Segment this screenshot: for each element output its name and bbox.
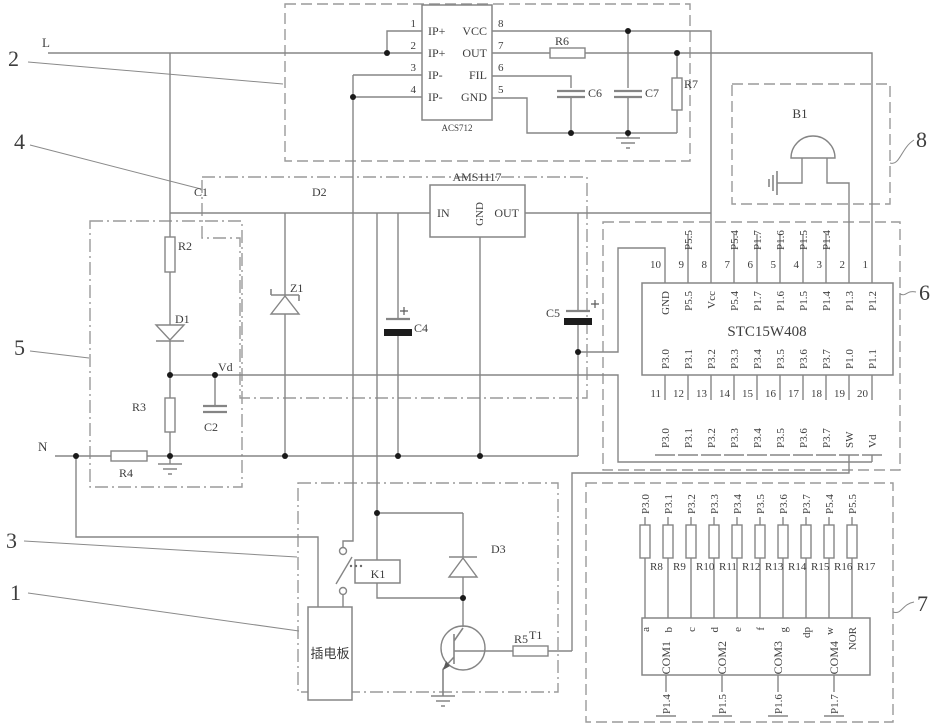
- mcu-bottom-pin-name: P3.2: [706, 349, 718, 369]
- display-segment-pin: g: [778, 627, 790, 633]
- mcu-bottom-pin-name: P3.1: [683, 349, 695, 369]
- display-segment-pin: dp: [801, 627, 813, 639]
- label-c4: C4: [414, 321, 428, 335]
- label-d1: D1: [175, 312, 190, 326]
- ams1117-pin-in: IN: [437, 206, 450, 220]
- display-segment-pin: a: [640, 627, 652, 632]
- mcu-top-net-label: P1.5: [798, 230, 810, 250]
- ref-4: 4: [14, 129, 25, 154]
- mcu-bottom-net-label: P3.0: [660, 428, 672, 448]
- mcu-top-pin-number: 7: [725, 259, 731, 271]
- mcu-top-pin-name: P1.4: [821, 291, 833, 311]
- acs712-left-pin-number: 2: [411, 40, 417, 52]
- mcu-bottom-net-label: P3.5: [775, 428, 787, 448]
- display-resistor-label: R9: [673, 561, 686, 573]
- mcu-bottom-net-label: P3.4: [752, 428, 764, 448]
- mcu-bottom-net-label: P3.1: [683, 428, 695, 448]
- display-input-net-label: P3.2: [686, 494, 698, 514]
- label-r2: R2: [178, 239, 192, 253]
- display-resistor-label: R14: [788, 561, 807, 573]
- display-segment-pin: d: [709, 627, 721, 633]
- display-input-net-label: P3.6: [778, 494, 790, 514]
- net-label-live: L: [42, 35, 50, 50]
- acs712-left-pin-number: 3: [411, 62, 417, 74]
- net-label-neutral: N: [38, 439, 48, 454]
- ams1117-pin-out: OUT: [494, 206, 519, 220]
- display-com-net-label: P1.6: [773, 694, 785, 714]
- display-com-pin: COM3: [771, 641, 785, 674]
- acs712-left-pin-number: 4: [411, 84, 417, 96]
- mcu-top-pin-name: GND: [660, 291, 672, 315]
- resistor-r8: [640, 525, 650, 558]
- net-label-vd: Vd: [218, 360, 233, 374]
- diode-d3: [449, 558, 477, 577]
- mcu-bottom-pin-name: P3.4: [752, 349, 764, 369]
- display-resistor-label: R17: [857, 561, 876, 573]
- mcu-top-pin-name: P5.5: [683, 291, 695, 311]
- mcu-bottom-pin-number: 13: [696, 388, 708, 400]
- label-c1: C1: [194, 185, 208, 199]
- display-segment-pin: c: [686, 627, 698, 632]
- display-segment-pin: NOR: [847, 626, 859, 650]
- display-resistor-label: R16: [834, 561, 853, 573]
- mcu-top-pin-number: 10: [650, 259, 662, 271]
- plug-board-label: 插电板: [310, 646, 349, 661]
- label-c2: C2: [204, 420, 218, 434]
- ref-1: 1: [10, 580, 21, 605]
- ams1117-name: AMS1117: [452, 170, 501, 184]
- acs712-left-pin: IP-: [428, 68, 443, 82]
- resistor-r6: [550, 48, 585, 58]
- display-segment-pin: e: [732, 627, 744, 632]
- acs712-name: ACS712: [441, 123, 472, 133]
- mcu-top-net-label: P1.7: [752, 230, 764, 250]
- resistor-r15: [801, 525, 811, 558]
- label-r7: R7: [684, 77, 698, 91]
- mcu-top-pin-number: 2: [840, 259, 846, 271]
- mcu-bottom-net-label: P3.2: [706, 428, 718, 448]
- mcu-bottom-net-label: P3.6: [798, 428, 810, 448]
- ref-5: 5: [14, 335, 25, 360]
- label-b1: B1: [792, 106, 807, 121]
- display-resistor-label: R8: [650, 561, 663, 573]
- mcu-bottom-pin-number: 17: [788, 388, 800, 400]
- resistor-r7: [672, 78, 682, 110]
- polarity-plus-marks: [400, 300, 599, 315]
- display-com-net-label: P1.4: [661, 694, 673, 714]
- mcu-bottom-pin-name: P3.7: [821, 349, 833, 369]
- ref-6: 6: [919, 280, 930, 305]
- resistor-r17: [847, 525, 857, 558]
- ref-8: 8: [916, 127, 927, 152]
- ref-3: 3: [6, 528, 17, 553]
- mcu-bottom-pin-number: 11: [650, 388, 661, 400]
- mcu-top-pin-number: 9: [679, 259, 685, 271]
- capacitor-c6: [557, 91, 585, 97]
- region-4-power-boundary: [202, 177, 587, 398]
- mcu-bottom-pin-name: P1.1: [867, 349, 879, 369]
- display-input-net-label: P3.0: [640, 494, 652, 514]
- mcu-bottom-pin-number: 18: [811, 388, 823, 400]
- resistor-r11: [709, 525, 719, 558]
- mcu-top-pin-number: 3: [817, 259, 823, 271]
- mcu-bottom-pin-number: 14: [719, 388, 731, 400]
- resistor-r9: [663, 525, 673, 558]
- stc15w408-name: STC15W408: [727, 324, 806, 340]
- mcu-bottom-pin-number: 15: [742, 388, 754, 400]
- patent-figure: LNVd24531867ACS712IP+VCC18IP+OUT27IP-FIL…: [0, 0, 944, 727]
- acs712-right-pin: GND: [461, 90, 487, 104]
- display-input-net-label: P5.5: [847, 494, 859, 514]
- acs712-left-pin: IP+: [428, 24, 446, 38]
- diode-d1: [156, 325, 184, 340]
- mcu-top-pin-name: P1.6: [775, 291, 787, 311]
- mcu-top-pin-name: P1.7: [752, 291, 764, 311]
- mcu-top-pin-number: 8: [702, 259, 708, 271]
- resistor-r4: [111, 451, 147, 461]
- acs712-left-pin-number: 1: [411, 18, 417, 30]
- acs712-right-pin-number: 7: [498, 40, 504, 52]
- acs712-right-pin: OUT: [462, 46, 487, 60]
- display-resistor-label: R10: [696, 561, 715, 573]
- switch-actuation-dots: [350, 565, 362, 567]
- label-r4: R4: [119, 466, 133, 480]
- mcu-bottom-pin-name: P3.5: [775, 349, 787, 369]
- mcu-bottom-net-label: P3.3: [729, 428, 741, 448]
- acs712-right-pin-number: 8: [498, 18, 504, 30]
- ref-2: 2: [8, 46, 19, 71]
- mcu-bottom-pin-number: 16: [765, 388, 777, 400]
- acs712-right-pin-number: 5: [498, 84, 504, 96]
- mcu-top-net-label: P1.6: [775, 230, 787, 250]
- display-resistors: [640, 525, 857, 558]
- display-input-net-label: P3.3: [709, 494, 721, 514]
- label-z1: Z1: [290, 281, 303, 295]
- mcu-top-pin-name: Vcc: [706, 291, 718, 309]
- capacitor-c2: [203, 406, 227, 412]
- acs712-left-pin: IP-: [428, 90, 443, 104]
- mcu-top-pin-number: 5: [771, 259, 777, 271]
- display-resistor-label: R12: [742, 561, 760, 573]
- acs712-right-pin: FIL: [469, 68, 487, 82]
- label-c7: C7: [645, 86, 659, 100]
- buzzer-b1-symbol: [791, 136, 835, 158]
- display-resistor-label: R13: [765, 561, 784, 573]
- display-segment-pin: f: [755, 627, 767, 631]
- switch-contact-top: [340, 548, 347, 555]
- capacitor-c5-neg-plate: [564, 318, 592, 325]
- label-r5: R5: [514, 632, 528, 646]
- label-c6: C6: [588, 86, 602, 100]
- switch-blade: [336, 557, 352, 584]
- display-com-pin: COM4: [827, 641, 841, 674]
- display-segment-pin: b: [663, 627, 675, 633]
- display-resistor-label: R11: [719, 561, 737, 573]
- mcu-top-pin-number: 1: [863, 259, 869, 271]
- display-input-net-label: P3.7: [801, 494, 813, 514]
- display-com-net-label: P1.5: [717, 694, 729, 714]
- mcu-top-pin-number: 6: [748, 259, 754, 271]
- resistor-r5: [513, 646, 548, 656]
- mcu-bottom-net-label: P3.7: [821, 428, 833, 448]
- region-7-display-boundary: [586, 483, 893, 722]
- mcu-top-pin-name: P1.5: [798, 291, 810, 311]
- mcu-top-pin-name: P5.4: [729, 291, 741, 311]
- mcu-top-net-label: P5.4: [729, 230, 741, 250]
- mcu-bottom-pin-number: 12: [673, 388, 684, 400]
- mcu-top-pin-name: P1.2: [867, 291, 879, 311]
- mcu-bottom-net-label: Vd: [867, 434, 879, 448]
- resistor-r3: [165, 398, 175, 432]
- display-com-pin: COM1: [659, 641, 673, 674]
- mcu-bottom-pin-name: P3.3: [729, 349, 741, 369]
- display-resistor-label: R15: [811, 561, 830, 573]
- relay-contact-switch: [336, 548, 352, 595]
- display-input-net-label: P3.4: [732, 494, 744, 514]
- acs712-right-pin-number: 6: [498, 62, 504, 74]
- ref-7: 7: [917, 591, 928, 616]
- display-input-net-label: P3.1: [663, 494, 675, 514]
- resistor-r13: [755, 525, 765, 558]
- label-r6: R6: [555, 34, 569, 48]
- resistor-r14: [778, 525, 788, 558]
- mcu-bottom-net-label: SW: [844, 431, 856, 448]
- display-input-net-label: P3.5: [755, 494, 767, 514]
- ams1117-pin-gnd: GND: [474, 202, 486, 226]
- resistor-r2: [165, 237, 175, 272]
- zener-z1: [271, 296, 299, 314]
- display-com-net-label: P1.7: [829, 694, 841, 714]
- mcu-bottom-pin-number: 20: [857, 388, 869, 400]
- label-k1: K1: [371, 567, 386, 581]
- mcu-bottom-pin-name: P3.6: [798, 349, 810, 369]
- mcu-top-pin-name: P1.3: [844, 291, 856, 311]
- label-d2: D2: [312, 185, 327, 199]
- switch-contact-bottom: [340, 588, 347, 595]
- display-segment-pin: w: [824, 627, 836, 635]
- label-d3: D3: [491, 542, 506, 556]
- mcu-top-net-label: P5.5: [683, 230, 695, 250]
- capacitor-c4-neg-plate: [384, 329, 412, 336]
- resistor-r16: [824, 525, 834, 558]
- acs712-right-pin: VCC: [462, 24, 487, 38]
- mcu-bottom-pin-name: P3.0: [660, 349, 672, 369]
- resistor-r10: [686, 525, 696, 558]
- mcu-top-net-label: P1.4: [821, 230, 833, 250]
- mcu-bottom-pin-name: P1.0: [844, 349, 856, 369]
- mcu-bottom-pin-number: 19: [834, 388, 846, 400]
- display-input-net-label: P5.4: [824, 494, 836, 514]
- resistor-r12: [732, 525, 742, 558]
- capacitor-plates: [203, 91, 642, 412]
- label-t1: T1: [529, 628, 542, 642]
- capacitor-c7: [614, 91, 642, 97]
- display-com-pin: COM2: [715, 641, 729, 674]
- label-c5: C5: [546, 306, 560, 320]
- circuit-schematic: LNVd24531867ACS712IP+VCC18IP+OUT27IP-FIL…: [0, 0, 944, 727]
- label-r3: R3: [132, 400, 146, 414]
- acs712-left-pin: IP+: [428, 46, 446, 60]
- mcu-top-pin-number: 4: [794, 259, 800, 271]
